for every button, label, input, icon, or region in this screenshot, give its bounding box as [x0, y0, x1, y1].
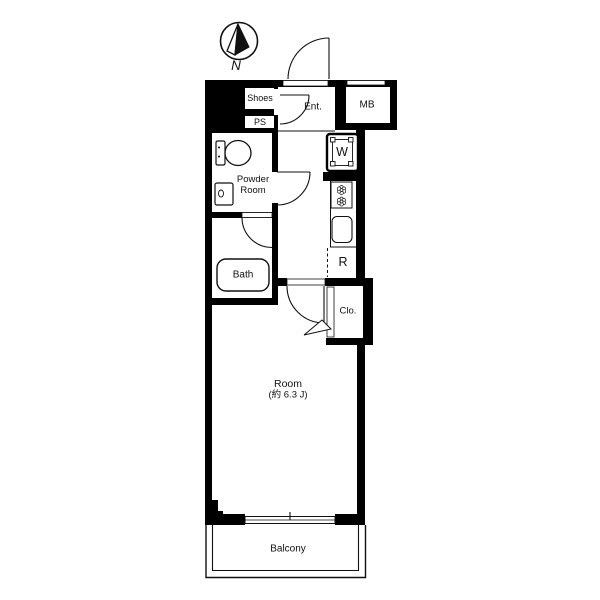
- powder-room-label-line1: Powder: [237, 174, 269, 185]
- entrance-door-opening: [283, 81, 328, 87]
- bath-door-opening: [242, 213, 272, 218]
- meter-box-opening: [347, 81, 385, 86]
- shoes-cabinet-front: [274, 89, 278, 115]
- kitchen-sink-icon: [332, 217, 352, 243]
- bath-label: Bath: [233, 269, 254, 281]
- powder-room-label: PowderRoom: [237, 175, 269, 197]
- room-door-swing: [287, 286, 324, 323]
- bath-door-swing: [242, 218, 272, 248]
- entrance-door-swing: [288, 38, 329, 79]
- powder-room-door-swing: [277, 172, 310, 205]
- meter-box-label: MB: [360, 99, 375, 111]
- floor-plan-page: N Shoes PS Ent. MB W PowderRoom Bath R C…: [0, 0, 600, 600]
- washer-label: W: [336, 145, 348, 159]
- room-size-label: (約 6.3 J): [268, 391, 307, 402]
- compass-north-label: N: [231, 58, 241, 74]
- room-label: Room: [274, 378, 302, 390]
- balcony-label: Balcony: [270, 543, 306, 555]
- closet-label: Clo.: [340, 307, 357, 318]
- washbasin-icon: [215, 183, 233, 205]
- floor-plan-drawing: [0, 0, 600, 600]
- entrance-label: Ent.: [304, 101, 322, 113]
- compass-north-icon: [221, 23, 258, 60]
- refrigerator-label: R: [338, 255, 347, 269]
- ps-label: PS: [254, 117, 266, 127]
- shoes-label: Shoes: [247, 93, 273, 103]
- powder-room-label-line2: Room: [240, 185, 265, 196]
- stove-burner-icon: [337, 197, 345, 206]
- toilet-icon: [216, 141, 251, 166]
- room-door-opening: [287, 279, 325, 285]
- stove-burner-icon: [337, 186, 345, 195]
- sliding-window-icon: [245, 512, 335, 524]
- two-burner-stove-icon: [331, 182, 352, 208]
